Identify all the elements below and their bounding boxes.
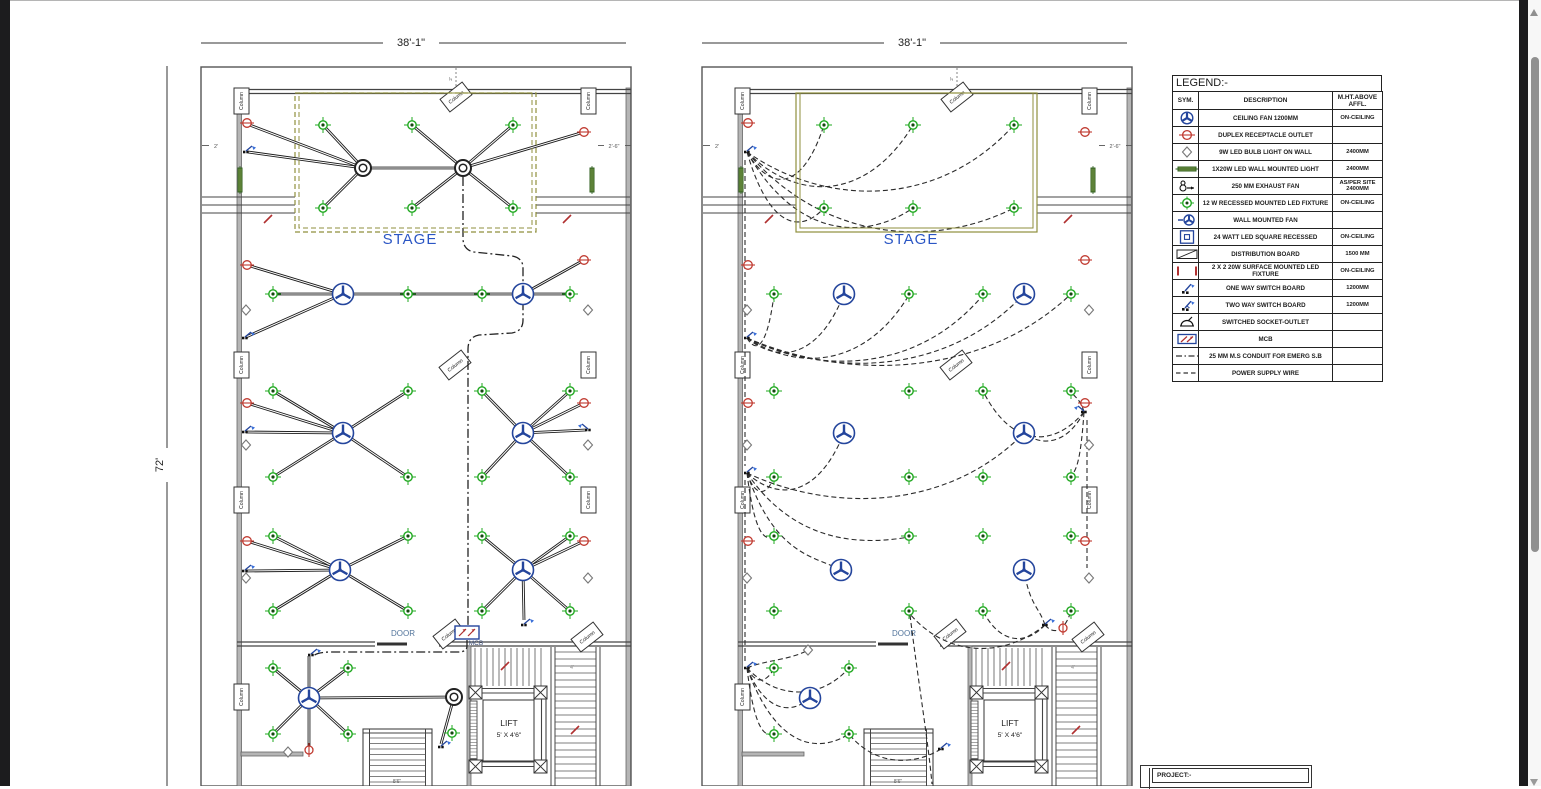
power-wire-icon [1174,366,1199,380]
junction-symbol [455,160,471,176]
legend-header-sym: SYM. [1173,92,1199,110]
legend-description: 12 W RECESSED MOUNTED LED FIXTURE [1199,195,1333,212]
mcb-symbol [455,626,479,639]
legend-mounting-height: 2400MM [1333,144,1383,161]
recessed-led-symbol [1063,528,1079,544]
led-wall-light-symbol [238,166,242,194]
legend-description: 9W LED BULB LIGHT ON WALL [1199,144,1333,161]
column-label: Column [1087,491,1093,509]
legend-symbol-cell [1173,229,1199,246]
recessed-led-symbol [562,286,578,302]
bulb-wall-light-symbol [743,440,752,450]
project-titleblock: PROJECT:- [1140,765,1312,788]
column-marker: Column [234,88,249,114]
bulb-wall-light-symbol [743,573,752,583]
plan-width-dimension: 38'-1" [397,37,425,49]
surface-led-symbol [264,215,272,223]
recessed-led-symbol [901,603,917,619]
conduit-line-icon [1174,349,1199,363]
recessed-led-symbol [901,528,917,544]
ceiling-fan-symbol [330,560,351,581]
legend-row: 9W LED BULB LIGHT ON WALL2400MM [1173,144,1383,161]
ceiling-fan-symbol [1014,560,1035,581]
legend-row: MCB [1173,331,1383,348]
surface-led-symbol [1064,215,1072,223]
legend-row: 1X20W LED WALL MOUNTED LIGHT2400MM [1173,161,1383,178]
legend-mounting-height: ON-CEILING [1333,263,1383,280]
column-marker: Column [1082,88,1097,114]
column-label: Column [586,356,592,374]
legend-row: SWITCHED SOCKET-OUTLET [1173,314,1383,331]
column-offset-dimension: 2' [448,77,454,81]
column-marker: Column [1082,487,1097,513]
emergency-conduit [313,177,523,657]
bulb-wall-light-symbol [743,305,752,315]
duplex-outlet-symbol [240,399,254,408]
ceiling-fan-icon [1174,111,1199,125]
project-label: PROJECT:- [1152,768,1309,783]
legend-description: 250 MM EXHAUST FAN [1199,178,1333,195]
legend-mounting-height: ON-CEILING [1333,110,1383,127]
ceiling-fan-symbol [834,284,855,305]
switch-board-symbol [744,146,757,153]
stage-label: STAGE [383,231,438,248]
recessed-led-symbol [400,603,416,619]
recessed-led-symbol [901,383,917,399]
legend-description: TWO WAY SWITCH BOARD [1199,297,1333,314]
led-wall-light-icon [1174,162,1199,176]
duplex-outlet-symbol [741,399,755,408]
recessed-led-symbol [975,603,991,619]
legend-description: DISTRIBUTION BOARD [1199,246,1333,263]
two-way-switch-icon [1174,298,1199,312]
plan-shell: 38'-1"DOOR8'6"LIFT5' X 4'6"4'ColumnColum… [702,37,1132,786]
column-label: Column [586,92,592,110]
recessed-led-symbol [816,117,832,133]
ceiling-fan-symbol [1014,423,1035,444]
column-marker: Column [1072,622,1104,652]
recessed-led-symbol [766,528,782,544]
junction-symbol [446,689,462,705]
ceiling-fan-symbol [513,423,534,444]
legend-mounting-height: 1200MM [1333,297,1383,314]
recessed-led-symbol [766,383,782,399]
column-label: Column [239,688,245,706]
lift-size-label: 5' X 4'6" [497,732,522,739]
legend-row: POWER SUPPLY WIRE [1173,365,1383,382]
one-way-switch-icon [1174,281,1199,295]
legend-symbol-cell [1173,144,1199,161]
legend-row: 250 MM EXHAUST FANAS/PER SITE 2400MM [1173,178,1383,195]
lift-shaft: LIFT5' X 4'6" [469,686,547,773]
recessed-led-symbol [766,660,782,676]
legend-row: WALL MOUNTED FAN [1173,212,1383,229]
recessed-led-symbol [766,726,782,742]
legend-mounting-height: 2400MM [1333,161,1383,178]
legend-mounting-height [1333,314,1383,331]
recessed-led-symbol [975,528,991,544]
legend-mounting-height: 1200MM [1333,280,1383,297]
plan-height-dimension: 72' [154,458,166,472]
stage-label: STAGE [884,231,939,248]
column-label: Column [1087,356,1093,374]
lift-size-label: 5' X 4'6" [998,732,1023,739]
legend-description: SWITCHED SOCKET-OUTLET [1199,314,1333,331]
legend-description: 25 MM M.S CONDUIT FOR EMERG S.B [1199,348,1333,365]
bulb-wall-light-symbol [242,305,251,315]
wall-fan-icon [1174,213,1199,227]
legend-description: 24 WATT LED SQUARE RECESSED [1199,229,1333,246]
staircase: 8'6" [363,729,432,786]
legend-mounting-height [1333,212,1383,229]
legend-mounting-height [1333,127,1383,144]
staircase: 4' [1052,647,1101,786]
legend-symbol-cell [1173,331,1199,348]
recessed-led-symbol [265,469,281,485]
switch-board-symbol [938,743,951,750]
height-dimension: 72' [154,66,167,786]
recessed-led-symbol [1006,200,1022,216]
ceiling-fan-symbol [513,560,534,581]
column-marker: Column [440,82,472,112]
switch-board-symbol [744,467,757,474]
duplex-outlet-symbol [240,537,254,546]
bulb-wall-light-symbol [584,573,593,583]
scrollbar[interactable] [1528,0,1541,786]
legend-row: DUPLEX RECEPTACLE OUTLET [1173,127,1383,144]
staircase [976,648,1042,686]
legend-description: ONE WAY SWITCH BOARD [1199,280,1333,297]
column-marker: Column [940,350,972,380]
ceiling-fan-symbol [513,284,534,305]
legend-description: CEILING FAN 1200MM [1199,110,1333,127]
legend-row: CEILING FAN 1200MMON-CEILING [1173,110,1383,127]
column-marker: Column [571,622,603,652]
recessed-led-symbol [905,117,921,133]
surface-led-symbol [571,726,579,734]
column-marker: Column [1082,352,1097,378]
duplex-outlet-icon [1174,128,1199,142]
column-marker: Column [581,88,596,114]
bulb-wall-light-symbol [584,440,593,450]
distribution-board-icon [1174,247,1199,261]
column-marker: Column [234,684,249,710]
surface-led-symbol [563,215,571,223]
bulb-wall-light-icon [1174,145,1199,159]
legend-symbol-cell [1173,195,1199,212]
recessed-led-symbol [400,383,416,399]
column-marker: Column [735,684,750,710]
column-marker: Column [735,487,750,513]
bulb-wall-light-symbol [1085,305,1094,315]
bulb-wall-light-symbol [242,573,251,583]
recessed-led-symbol [766,286,782,302]
ceiling-fan-symbol [333,284,354,305]
recessed-led-symbol [905,200,921,216]
legend-table: SYM. DESCRIPTION M.HT.ABOVE AFFL. CEILIN… [1172,91,1383,382]
legend-symbol-cell [1173,212,1199,229]
led-wall-light-symbol [1091,166,1095,194]
legend-symbol-cell [1173,127,1199,144]
right-black-panel [1519,0,1528,786]
recessed-led-symbol [1063,383,1079,399]
stair-dimension: 8'6" [393,779,402,785]
legend-row: 25 MM M.S CONDUIT FOR EMERG S.B [1173,348,1383,365]
legend-header-row: SYM. DESCRIPTION M.HT.ABOVE AFFL. [1173,92,1383,110]
legend-header-description: DESCRIPTION [1199,92,1333,110]
recessed-led-symbol [265,603,281,619]
column-marker: Column [234,487,249,513]
column-label: Column [586,491,592,509]
exhaust-fan-icon [1174,179,1199,193]
legend-symbol-cell [1173,246,1199,263]
duplex-outlet-symbol [1078,537,1092,546]
recessed-led-symbol [400,286,416,302]
scrollbar-up-icon[interactable] [1530,9,1538,16]
recessed-led-symbol [265,383,281,399]
legend-mounting-height: 1500 MM [1333,246,1383,263]
legend-row: 12 W RECESSED MOUNTED LED FIXTUREON-CEIL… [1173,195,1383,212]
column-label: Column [239,92,245,110]
led-wall-light-symbol [590,166,594,194]
legend: LEGEND:- SYM. DESCRIPTION M.HT.ABOVE AFF… [1172,75,1382,382]
junction-symbol [355,160,371,176]
duplex-outlet-symbol [240,261,254,270]
recessed-led-symbol [265,286,281,302]
staircase [475,648,541,686]
duplex-outlet-symbol [741,537,755,546]
recessed-led-symbol [975,383,991,399]
legend-row: 2 X 2 20W SURFACE MOUNTED LED FIXTUREON-… [1173,263,1383,280]
column-label: Column [239,491,245,509]
mcb-label: MCB [469,640,483,647]
column-marker: Column [581,487,596,513]
duplex-outlet-symbol [741,119,755,128]
legend-symbol-cell [1173,297,1199,314]
legend-symbol-cell [1173,263,1199,280]
legend-mounting-height: ON-CEILING [1333,229,1383,246]
stair-dimension: 8'6" [894,779,903,785]
lift-label: LIFT [500,718,517,728]
legend-symbol-cell [1173,110,1199,127]
surface-led-symbol [765,215,773,223]
switch-board-symbol [438,741,451,748]
ceiling-fan-symbol [800,688,821,709]
column-marker: Column [735,88,750,114]
recessed-led-symbol [400,528,416,544]
wall-offset-dimension: 2' [214,144,218,150]
legend-symbol-cell [1173,280,1199,297]
legend-symbol-cell [1173,348,1199,365]
legend-mounting-height [1333,365,1383,382]
column-label: Column [740,92,746,110]
recessed-led-symbol [841,726,857,742]
duplex-outlet-symbol [1078,256,1092,265]
lift-label: LIFT [1001,718,1018,728]
wall-offset-dimension: 2'-6" [1110,144,1121,150]
legend-description: MCB [1199,331,1333,348]
recessed-led-icon [1174,196,1199,210]
ceiling-fan-symbol [834,423,855,444]
duplex-outlet-symbol [741,261,755,270]
recessed-led-symbol [1006,117,1022,133]
legend-mounting-height [1333,331,1383,348]
legend-row: ONE WAY SWITCH BOARD1200MM [1173,280,1383,297]
recessed-led-symbol [474,286,490,302]
legend-description: 1X20W LED WALL MOUNTED LIGHT [1199,161,1333,178]
wall-offset-dimension: 2' [715,144,719,150]
column-marker: Column [234,352,249,378]
recessed-led-symbol [400,469,416,485]
stair-width-dimension: 4' [1071,665,1075,671]
wall-offset-dimension: 2'-6" [609,144,620,150]
column-label: Column [1087,92,1093,110]
staircase: 4' [551,647,600,786]
legend-symbol-cell [1173,161,1199,178]
recessed-led-symbol [265,528,281,544]
surface-led-icon [1174,264,1199,278]
legend-description: POWER SUPPLY WIRE [1199,365,1333,382]
scrollbar-down-icon[interactable] [1530,779,1538,786]
switch-board-symbol [744,662,757,669]
legend-description: WALL MOUNTED FAN [1199,212,1333,229]
recessed-led-symbol [975,286,991,302]
plan-width-dimension: 38'-1" [898,37,926,49]
column-label: Column [239,356,245,374]
led-wall-light-symbol [739,166,743,194]
legend-row: TWO WAY SWITCH BOARD1200MM [1173,297,1383,314]
square-recessed-icon [1174,230,1199,244]
recessed-led-symbol [1063,469,1079,485]
column-marker: Column [941,82,973,112]
bulb-wall-light-symbol [1085,440,1094,450]
door-label: DOOR [391,629,415,638]
column-marker: Column [735,352,750,378]
ceiling-fan-symbol [333,423,354,444]
recessed-led-symbol [766,603,782,619]
switched-socket-icon [1174,315,1199,329]
legend-mounting-height: AS/PER SITE 2400MM [1333,178,1383,195]
fixtures: STAGE [739,93,1095,742]
column-offset-dimension: 2' [949,77,955,81]
legend-symbol-cell [1173,178,1199,195]
ceiling-fan-symbol [1014,284,1035,305]
legend-row: DISTRIBUTION BOARD1500 MM [1173,246,1383,263]
legend-symbol-cell [1173,314,1199,331]
recessed-led-symbol [766,469,782,485]
legend-row: 24 WATT LED SQUARE RECESSEDON-CEILING [1173,229,1383,246]
lift-shaft: LIFT5' X 4'6" [970,686,1048,773]
bulb-wall-light-symbol [1085,573,1094,583]
switch-board-symbol [744,332,757,339]
legend-header-height: M.HT.ABOVE AFFL. [1333,92,1383,110]
recessed-led-symbol [901,469,917,485]
legend-symbol-cell [1173,365,1199,382]
duplex-outlet-symbol [1078,128,1092,137]
column-marker: Column [581,352,596,378]
column-marker: Column [934,619,966,649]
scrollbar-thumb[interactable] [1531,57,1539,552]
ceiling-fan-symbol [299,688,320,709]
recessed-led-symbol [975,469,991,485]
legend-mounting-height: ON-CEILING [1333,195,1383,212]
recessed-led-symbol [901,286,917,302]
column-label: Column [740,688,746,706]
switch-board-symbol [521,619,534,626]
legend-description: 2 X 2 20W SURFACE MOUNTED LED FIXTURE [1199,263,1333,280]
duplex-outlet-symbol [1078,399,1092,408]
bulb-wall-light-symbol [242,440,251,450]
duplex-outlet-symbol [577,128,591,137]
mcb-icon [1174,332,1199,346]
socket-outlet-symbol [305,743,313,757]
stair-width-dimension: 4' [570,665,574,671]
surface-led-symbol [1072,726,1080,734]
bulb-wall-light-symbol [584,305,593,315]
column-marker: Column [439,350,471,380]
ceiling-fan-symbol [831,560,852,581]
legend-mounting-height [1333,348,1383,365]
recessed-led-symbol [1063,603,1079,619]
legend-title: LEGEND:- [1172,75,1382,91]
legend-description: DUPLEX RECEPTACLE OUTLET [1199,127,1333,144]
